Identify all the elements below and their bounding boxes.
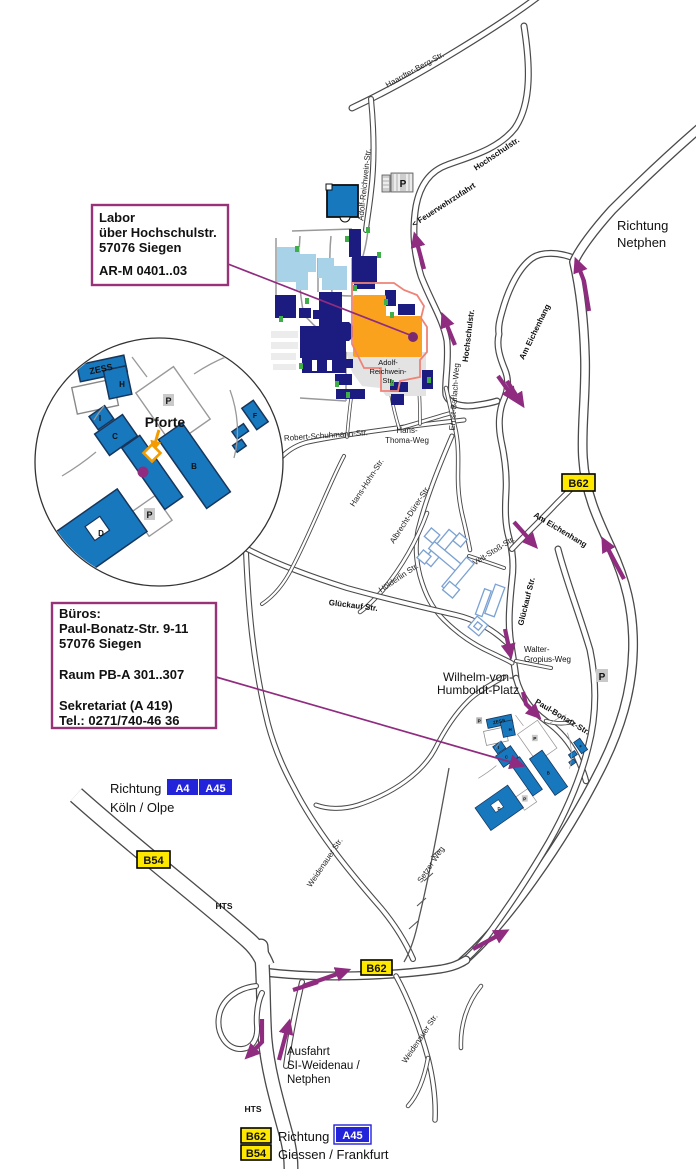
svg-text:B62: B62	[568, 478, 588, 490]
svg-text:57076 Siegen: 57076 Siegen	[59, 636, 141, 651]
svg-text:B62: B62	[246, 1131, 266, 1143]
svg-text:A45: A45	[205, 783, 225, 795]
svg-text:Pforte: Pforte	[145, 414, 186, 430]
svg-text:Thoma-Weg: Thoma-Weg	[385, 436, 429, 445]
svg-text:A45: A45	[342, 1130, 362, 1142]
svg-text:Ausfahrt: Ausfahrt	[287, 1046, 331, 1058]
svg-text:B54: B54	[143, 855, 164, 867]
svg-text:Sekretariat (A 419): Sekretariat (A 419)	[59, 698, 173, 713]
svg-text:Köln / Olpe: Köln / Olpe	[110, 800, 174, 815]
svg-text:A4: A4	[175, 783, 190, 795]
svg-text:57076 Siegen: 57076 Siegen	[99, 240, 181, 255]
svg-text:B62: B62	[366, 963, 386, 975]
svg-text:B54: B54	[246, 1148, 267, 1160]
svg-text:P: P	[400, 179, 407, 190]
svg-text:über Hochschulstr.: über Hochschulstr.	[99, 225, 217, 240]
svg-text:Büros:: Büros:	[59, 606, 101, 621]
svg-text:Gropius-Weg: Gropius-Weg	[524, 655, 571, 664]
svg-text:HTS: HTS	[245, 1104, 262, 1114]
svg-text:Weidenauer Str.: Weidenauer Str.	[305, 836, 344, 888]
svg-text:Raum PB-A 301..307: Raum PB-A 301..307	[59, 667, 184, 682]
svg-text:Am Eichenhang: Am Eichenhang	[517, 303, 552, 361]
svg-text:Netphen: Netphen	[287, 1074, 330, 1086]
svg-text:Paul-Bonatz-Str. 9-11: Paul-Bonatz-Str. 9-11	[59, 621, 188, 636]
svg-text:Glückauf Str.: Glückauf Str.	[516, 576, 537, 626]
svg-text:Richtung: Richtung	[617, 218, 668, 233]
svg-text:Wilhelm-von-: Wilhelm-von-	[443, 670, 513, 684]
svg-text:P: P	[599, 672, 606, 683]
svg-text:Netphen: Netphen	[617, 235, 666, 250]
svg-text:SI-Weidenau /: SI-Weidenau /	[287, 1060, 360, 1072]
svg-text:Weidenauer Str.: Weidenauer Str.	[400, 1012, 439, 1064]
svg-text:Haardter-Berg-Str.: Haardter-Berg-Str.	[384, 50, 446, 90]
svg-text:HTS: HTS	[216, 901, 233, 911]
svg-text:Tel.: 0271/740-46 36: Tel.: 0271/740-46 36	[59, 713, 179, 728]
svg-text:Adolf-: Adolf-	[378, 358, 398, 367]
svg-text:Reichwein-: Reichwein-	[369, 367, 407, 376]
svg-text:Hans-: Hans-	[396, 426, 418, 435]
svg-text:Labor: Labor	[99, 210, 135, 225]
svg-text:Richtung: Richtung	[110, 781, 161, 796]
svg-text:Am Eichenhang: Am Eichenhang	[532, 510, 589, 549]
svg-text:Humboldt-Platz: Humboldt-Platz	[437, 683, 519, 697]
svg-text:Str.: Str.	[382, 376, 393, 385]
svg-text:Giessen / Frankfurt: Giessen / Frankfurt	[278, 1147, 389, 1162]
svg-text:Richtung: Richtung	[278, 1129, 329, 1144]
svg-text:AR-M 0401..03: AR-M 0401..03	[99, 263, 187, 278]
svg-text:Setzer Weg: Setzer Weg	[416, 845, 447, 885]
svg-text:Hans-Hohn-Str.: Hans-Hohn-Str.	[348, 457, 386, 508]
svg-text:Walter-: Walter-	[524, 645, 550, 654]
svg-text:Hochschulstr.: Hochschulstr.	[461, 309, 476, 363]
